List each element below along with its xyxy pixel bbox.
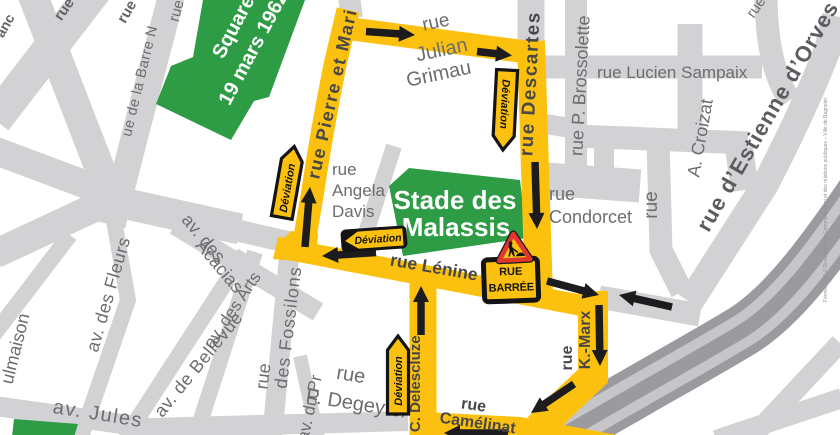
svg-text:Février 2016 © Direction de la: Février 2016 © Direction de la Communica… (822, 98, 829, 302)
svg-text:Condorcet: Condorcet (549, 207, 632, 227)
svg-text:rue: rue (335, 362, 367, 388)
svg-text:Angela: Angela (332, 181, 385, 200)
svg-text:rue: rue (559, 345, 576, 370)
svg-text:Davis: Davis (332, 202, 375, 221)
svg-text:K.-Marx: K.-Marx (577, 311, 594, 370)
svg-text:rue Lucien Sampaix: rue Lucien Sampaix (597, 63, 748, 82)
svg-text:rue: rue (641, 191, 662, 218)
svg-text:rue: rue (549, 184, 575, 204)
svg-text:RUE: RUE (499, 266, 523, 279)
svg-text:Malassis: Malassis (402, 212, 510, 242)
svg-text:Déviation: Déviation (393, 356, 405, 406)
svg-text:Stade des: Stade des (394, 185, 517, 215)
svg-text:rue: rue (332, 160, 357, 179)
svg-text:BARRÉE: BARRÉE (488, 280, 534, 295)
